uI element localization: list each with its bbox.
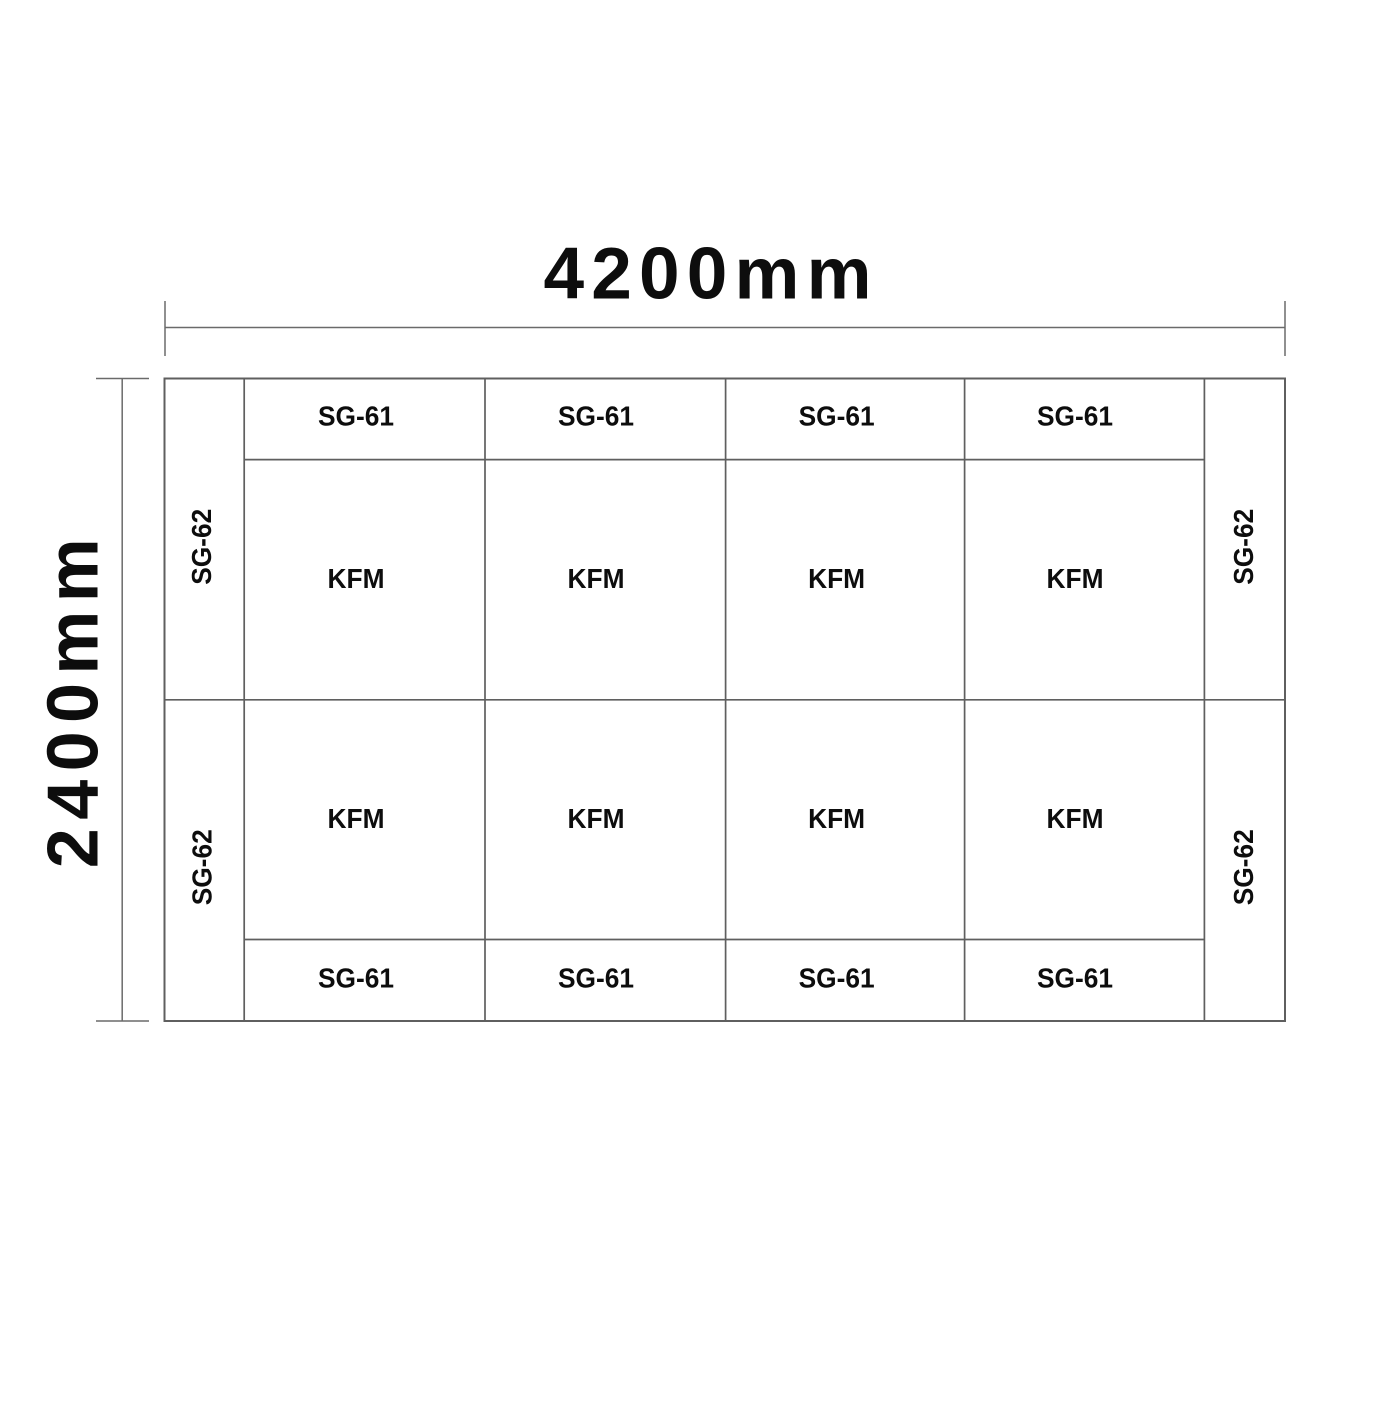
svg-text:SG-61: SG-61 [799, 401, 875, 432]
svg-text:KFM: KFM [808, 803, 865, 834]
svg-text:SG-61: SG-61 [1037, 401, 1113, 432]
svg-text:SG-61: SG-61 [318, 962, 394, 993]
svg-text:KFM: KFM [568, 803, 625, 834]
svg-text:SG-62: SG-62 [186, 509, 217, 585]
svg-text:SG-61: SG-61 [1037, 962, 1113, 993]
svg-text:KFM: KFM [568, 563, 625, 594]
svg-text:SG-62: SG-62 [1228, 829, 1259, 905]
svg-text:KFM: KFM [808, 563, 865, 594]
svg-text:4200mm: 4200mm [544, 234, 872, 315]
svg-text:KFM: KFM [1047, 803, 1104, 834]
svg-text:KFM: KFM [328, 563, 385, 594]
svg-text:KFM: KFM [1047, 563, 1104, 594]
svg-text:SG-62: SG-62 [1228, 509, 1259, 585]
svg-text:SG-61: SG-61 [799, 962, 875, 993]
svg-text:KFM: KFM [328, 803, 385, 834]
svg-text:SG-61: SG-61 [318, 401, 394, 432]
svg-text:2400mm: 2400mm [34, 538, 114, 868]
svg-text:SG-61: SG-61 [558, 962, 634, 993]
svg-text:SG-61: SG-61 [558, 401, 634, 432]
svg-text:SG-62: SG-62 [187, 829, 218, 905]
